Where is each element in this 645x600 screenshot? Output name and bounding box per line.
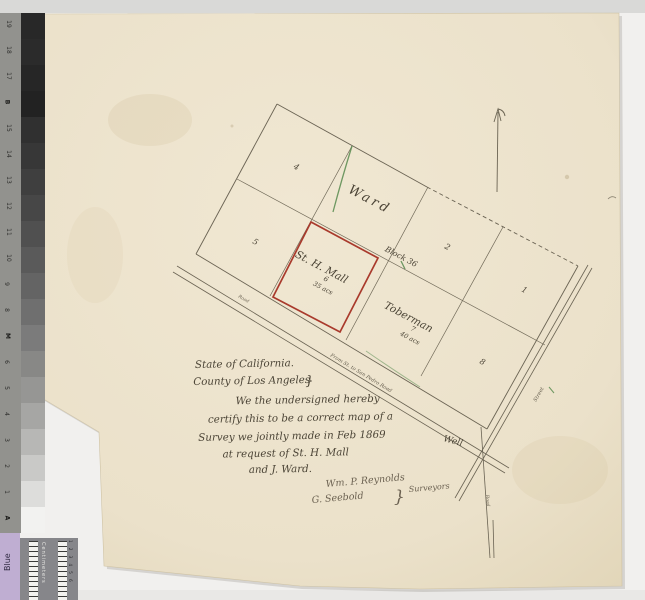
paper-stain (512, 436, 608, 504)
grayscale-label: 12 (0, 195, 21, 221)
paper-speck (231, 125, 234, 128)
ruler-card: Centimeters 1 2 3 4 5 6 (20, 538, 78, 600)
grayscale-step (21, 13, 45, 39)
cert-line-2: County of Los Angeles (193, 374, 310, 388)
grayscale-label: 3 (0, 429, 21, 455)
grayscale-step (21, 377, 45, 403)
grayscale-label: 1 (0, 481, 21, 507)
grayscale-step (21, 143, 45, 169)
grayscale-step (21, 429, 45, 455)
grayscale-step (21, 195, 45, 221)
signature-brace: } (394, 487, 405, 507)
grayscale-step (21, 221, 45, 247)
grayscale-label: 17 (0, 65, 21, 91)
grayscale-step (21, 299, 45, 325)
paper-stain (67, 207, 123, 303)
grayscale-label: 13 (0, 169, 21, 195)
paper-speck (565, 175, 569, 179)
road-label-south: Road (484, 494, 491, 507)
cert-line-6: at request of St. H. Mall (222, 446, 349, 460)
grayscale-label: 10 (0, 247, 21, 273)
grayscale-step (21, 455, 45, 481)
grayscale-step (21, 507, 45, 533)
grayscale-step (21, 325, 45, 351)
grayscale-label: 9 (0, 273, 21, 299)
ruler-label: Centimeters (40, 542, 46, 584)
ruler-ticks (58, 541, 67, 600)
grayscale-step (21, 403, 45, 429)
grayscale-label: 8 (0, 299, 21, 325)
grayscale-step (21, 169, 45, 195)
grayscale-label: B (0, 91, 21, 117)
paper-stain (108, 94, 192, 146)
grayscale-label: 2 (0, 455, 21, 481)
grayscale-step (21, 273, 45, 299)
grayscale-step (21, 117, 45, 143)
grayscale-label: 18 (0, 39, 21, 65)
blue-patch-label: Blue (3, 553, 12, 571)
grayscale-label: 4 (0, 403, 21, 429)
grayscale-step (21, 481, 45, 507)
grayscale-calibration-bar: 19 18 17 B 15 14 13 12 11 10 9 8 M 6 5 4… (0, 13, 45, 533)
grayscale-label: M (0, 325, 21, 351)
cert-line-1: State of California. (195, 357, 294, 371)
cert-brace: } (305, 374, 314, 389)
blue-calibration-patch: Blue (0, 533, 20, 600)
grayscale-label: 5 (0, 377, 21, 403)
grayscale-label: A (0, 507, 21, 533)
grayscale-step (21, 247, 45, 273)
map-artwork: Ward Block 36 St. H. Mall 6 35 acs Tober… (0, 0, 645, 600)
ruler-scale-numbers: 1 2 3 4 5 6 (68, 540, 73, 584)
grayscale-step (21, 91, 45, 117)
grayscale-step (21, 351, 45, 377)
grayscale-label: 11 (0, 221, 21, 247)
grayscale-label: 6 (0, 351, 21, 377)
scanned-map-page: { "meta": { "description": "Scanned hand… (0, 0, 645, 600)
grayscale-label: 15 (0, 117, 21, 143)
cert-line-7: and J. Ward. (249, 463, 312, 476)
grayscale-step (21, 65, 45, 91)
grayscale-step (21, 39, 45, 65)
cert-line-3: We the undersigned hereby (236, 393, 380, 408)
grayscale-label: 14 (0, 143, 21, 169)
grayscale-label: 19 (0, 13, 21, 39)
ruler-ticks (29, 541, 38, 600)
